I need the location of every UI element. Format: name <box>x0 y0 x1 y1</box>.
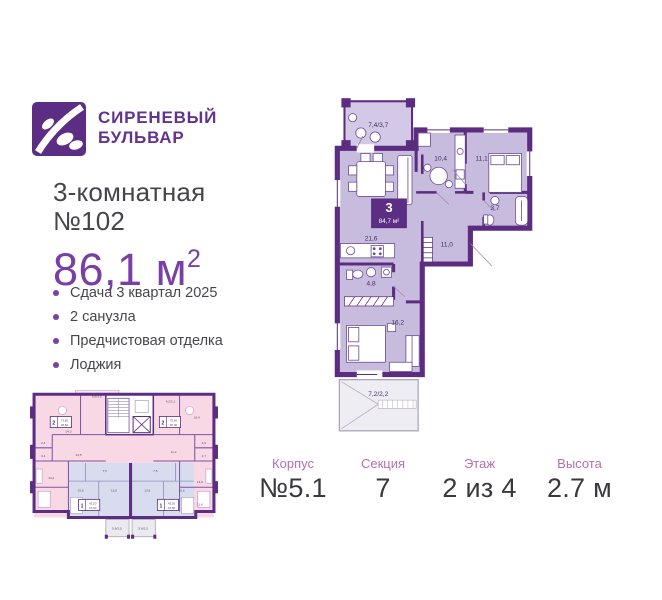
svg-text:13,5: 13,5 <box>75 453 81 457</box>
badge-apartment-2room-right: 2 75,60 30,00 <box>159 416 180 427</box>
room-label-bedroom-2: 16,2 <box>391 319 404 326</box>
svg-text:42,20: 42,20 <box>168 501 176 505</box>
brand-name-line2: БУЛЬВАР <box>98 128 217 148</box>
svg-text:28,50: 28,50 <box>61 423 69 427</box>
mini-elevator-icon <box>133 400 150 432</box>
room-label-kitchen: 10,4 <box>434 156 447 163</box>
main-plan-badge: 3 84,7 м² <box>371 198 407 228</box>
room-label-bathroom-1: 3,7 <box>490 205 499 212</box>
area-superscript: 2 <box>187 245 201 273</box>
detail-value: 2.7 м <box>537 473 622 504</box>
feature-item: Предчистовая отделка <box>53 333 223 349</box>
detail-building: Корпус №5.1 <box>251 456 335 504</box>
bullet-icon <box>53 362 59 368</box>
main-floor-plan-svg: 3 84,7 м² 7,4/3,7 10,4 11,1 3,7 21,6 11,… <box>330 90 535 438</box>
svg-text:5,6/2,5: 5,6/2,5 <box>138 527 148 531</box>
svg-text:2: 2 <box>52 421 55 427</box>
svg-text:15,6: 15,6 <box>179 488 185 492</box>
svg-text:11,6: 11,6 <box>197 502 203 506</box>
badge-area: 84,7 м² <box>379 218 400 225</box>
svg-text:5,6/2,5: 5,6/2,5 <box>112 527 122 531</box>
detail-section: Секция 7 <box>348 456 418 504</box>
detail-label: Корпус <box>251 456 335 471</box>
brand-logo <box>32 102 86 161</box>
badge-apartment-1room-left: 1 42,20 15,60 <box>79 499 100 510</box>
room-label-balcony-bottom: 7,2/2,2 <box>368 391 388 398</box>
svg-text:7,5: 7,5 <box>153 469 158 473</box>
detail-label: Этаж <box>432 456 527 471</box>
svg-text:15,6: 15,6 <box>78 488 84 492</box>
svg-text:6,9/3,5: 6,9/3,5 <box>92 394 102 398</box>
svg-text:14,2: 14,2 <box>48 476 54 480</box>
badge-apartment-1room-right: 1 42,20 15,60 <box>157 499 178 510</box>
feature-item: 2 санузла <box>53 309 223 325</box>
feature-item: Лоджия <box>53 357 223 373</box>
bullet-icon <box>53 338 59 344</box>
detail-floor: Этаж 2 из 4 <box>432 456 527 504</box>
svg-text:4,2/2,1: 4,2/2,1 <box>166 399 176 403</box>
section-floor-plan-svg: 2 73,80 28,50 2 75,60 30,00 1 42,20 15,6… <box>28 390 220 542</box>
svg-text:13,6: 13,6 <box>197 480 203 484</box>
room-label-living: 21,6 <box>365 235 378 242</box>
feature-list: Сдача 3 квартал 2025 2 санузла Предчисто… <box>53 285 223 381</box>
brand-name: СИРЕНЕВЫЙ БУЛЬВАР <box>98 108 217 147</box>
detail-value: 2 из 4 <box>432 473 527 504</box>
feature-item: Сдача 3 квартал 2025 <box>53 285 223 301</box>
svg-text:75,60: 75,60 <box>170 419 178 423</box>
brand-logo-icon <box>32 102 86 156</box>
brand-name-line1: СИРЕНЕВЫЙ <box>98 108 217 128</box>
svg-text:2,7: 2,7 <box>202 454 207 458</box>
detail-value: 7 <box>348 473 418 504</box>
svg-text:14,3: 14,3 <box>65 430 71 434</box>
detail-value: №5.1 <box>251 473 335 504</box>
bullet-icon <box>53 314 59 320</box>
section-floor-plan: 2 73,80 28,50 2 75,60 30,00 1 42,20 15,6… <box>28 390 220 547</box>
svg-text:15,60: 15,60 <box>168 506 176 510</box>
svg-text:13,8: 13,8 <box>111 488 117 492</box>
badge-room-count: 3 <box>385 200 392 215</box>
apartment-card: СИРЕНЕВЫЙ БУЛЬВАР 3-комнатная №102 86,1 … <box>0 0 662 600</box>
svg-text:3,4: 3,4 <box>41 454 46 458</box>
room-label-bedroom-1: 11,1 <box>475 156 488 163</box>
svg-text:3,9: 3,9 <box>202 441 207 445</box>
apartment-number: №102 <box>53 207 205 236</box>
detail-height: Высота 2.7 м <box>537 456 622 504</box>
room-label-balcony-top: 7,4/3,7 <box>368 122 388 129</box>
svg-text:2: 2 <box>161 421 164 427</box>
svg-text:73,80: 73,80 <box>61 419 69 423</box>
svg-text:15,60: 15,60 <box>89 506 97 510</box>
room-label-bathroom-2: 4,8 <box>367 280 376 287</box>
apartment-summary: 3-комнатная №102 86,1 м2 <box>53 178 205 296</box>
apartment-type-title: 3-комнатная №102 <box>53 178 205 236</box>
svg-text:1: 1 <box>81 503 84 509</box>
svg-text:30,00: 30,00 <box>170 423 178 427</box>
svg-text:7,5: 7,5 <box>103 469 108 473</box>
svg-text:2,4: 2,4 <box>41 441 46 445</box>
main-floor-plan: 3 84,7 м² 7,4/3,7 10,4 11,1 3,7 21,6 11,… <box>330 90 535 443</box>
svg-text:13,8: 13,8 <box>144 488 150 492</box>
detail-label: Секция <box>348 456 418 471</box>
svg-text:42,20: 42,20 <box>89 501 97 505</box>
svg-text:1: 1 <box>159 503 162 509</box>
balcony-bottom <box>339 380 418 431</box>
detail-label: Высота <box>537 456 622 471</box>
bullet-icon <box>53 290 59 296</box>
room-label-hall: 11,0 <box>441 242 454 249</box>
apartment-type-line1: 3-комнатная <box>53 178 205 207</box>
mini-stairs <box>108 398 129 432</box>
badge-apartment-2room-left: 2 73,80 28,50 <box>50 416 71 427</box>
svg-text:16,4: 16,4 <box>194 416 200 420</box>
svg-text:11,2: 11,2 <box>171 450 177 454</box>
